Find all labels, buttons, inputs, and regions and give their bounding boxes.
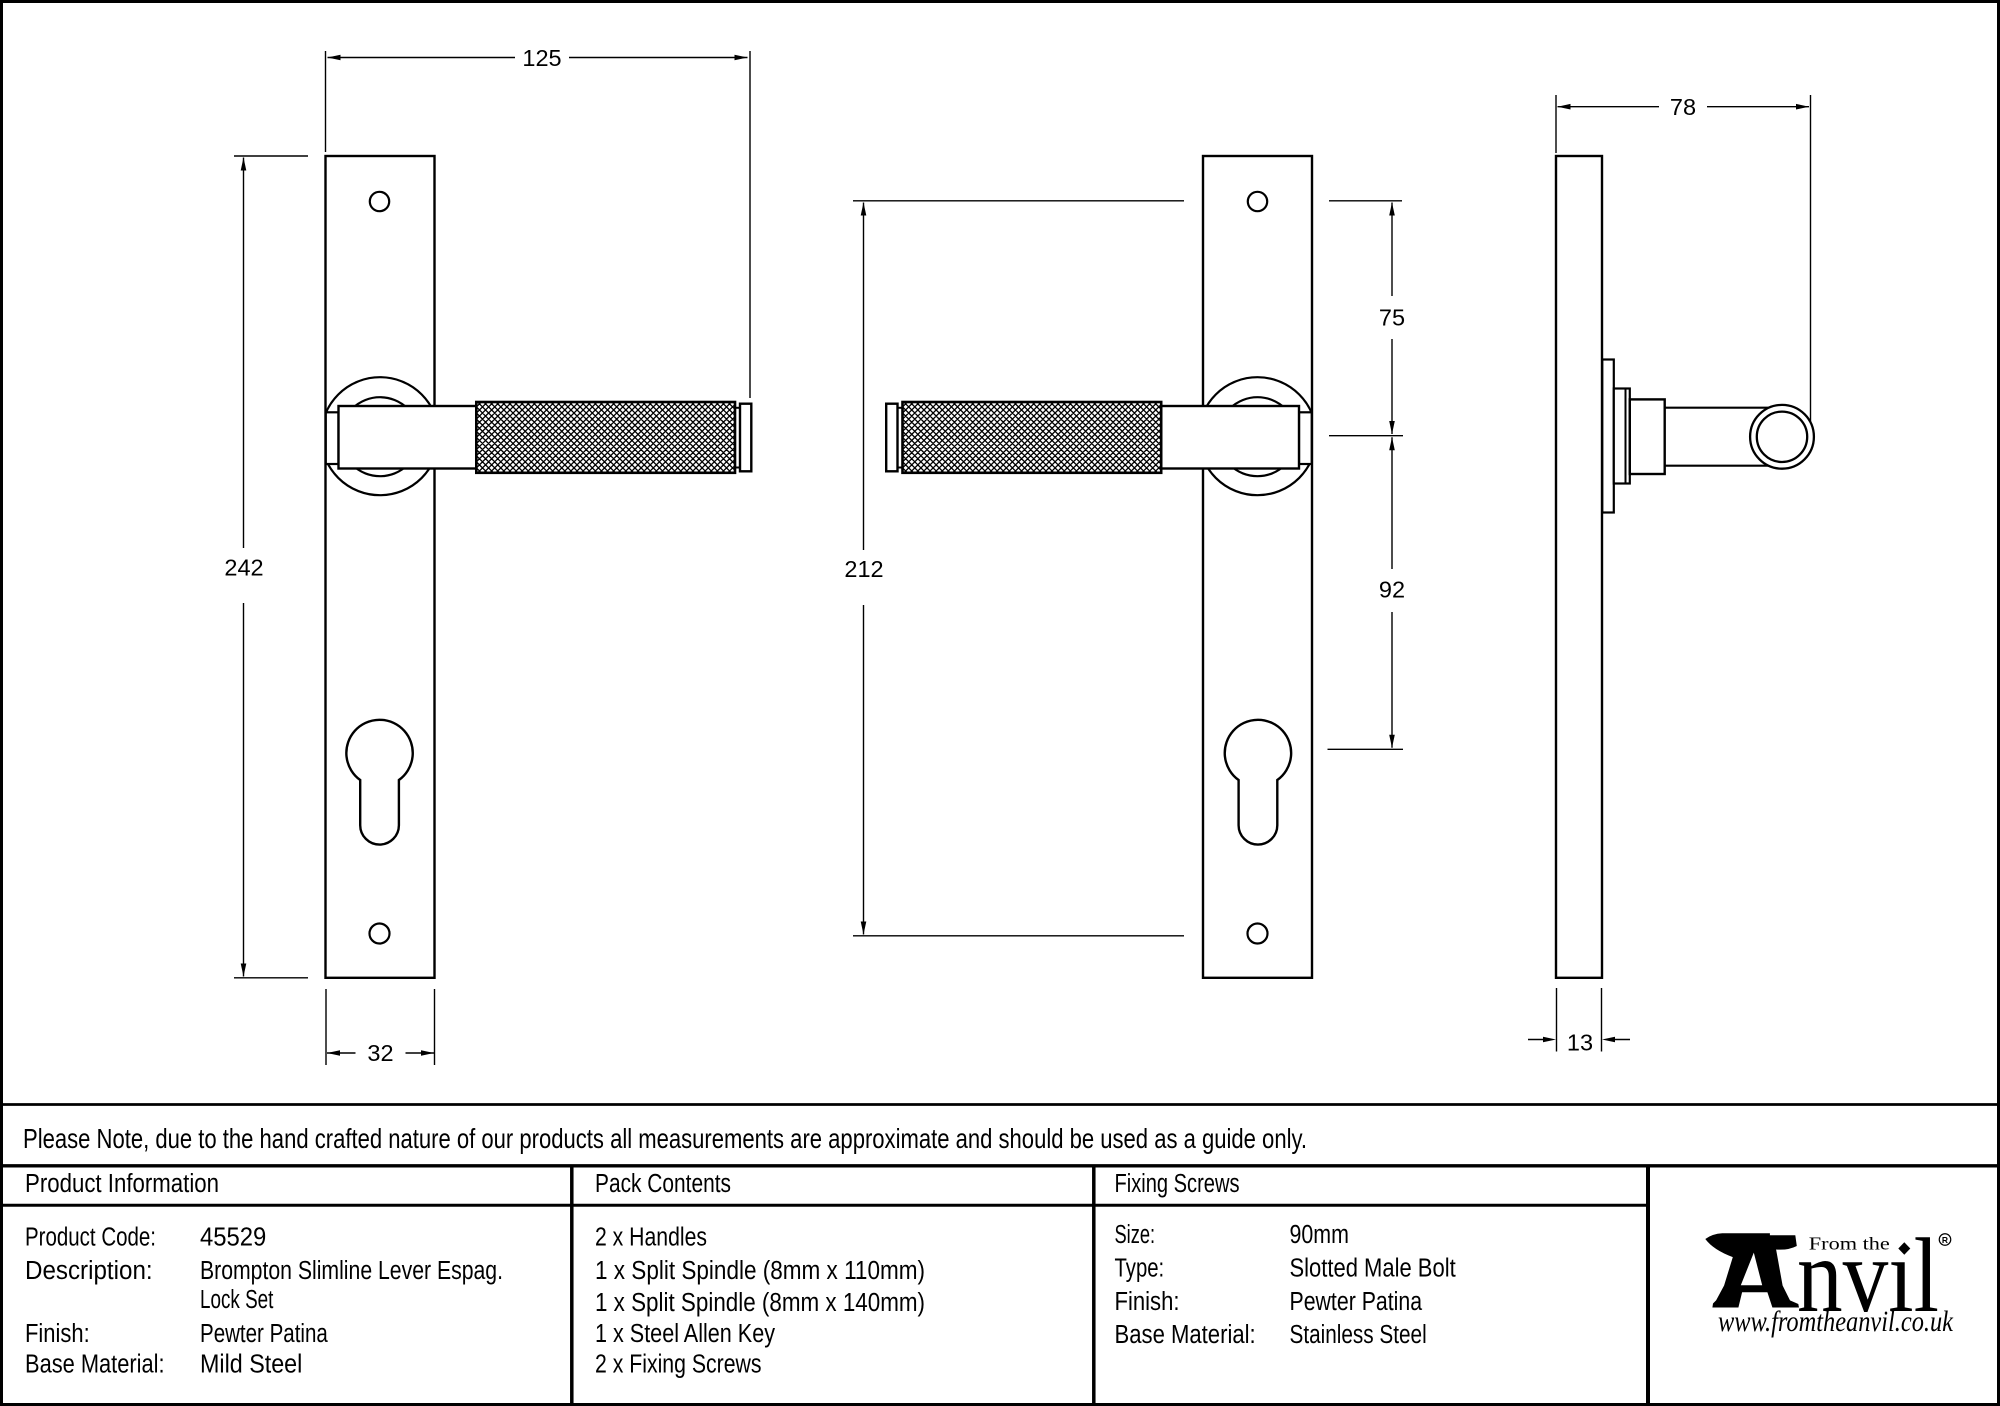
svg-text:Type:: Type: <box>1115 1255 1165 1283</box>
svg-text:Description:: Description: <box>25 1257 153 1285</box>
svg-text:Slotted Male Bolt: Slotted Male Bolt <box>1290 1255 1456 1283</box>
svg-text:Pewter Patina: Pewter Patina <box>200 1320 328 1348</box>
svg-text:Please Note, due to the hand c: Please Note, due to the hand crafted nat… <box>23 1123 1307 1154</box>
svg-text:Lock Set: Lock Set <box>200 1286 273 1314</box>
svg-text:45529: 45529 <box>200 1224 266 1252</box>
svg-text:Pewter Patina: Pewter Patina <box>1290 1288 1423 1316</box>
svg-text:242: 242 <box>224 555 263 581</box>
svg-text:Mild Steel: Mild Steel <box>200 1351 302 1379</box>
svg-text:Finish:: Finish: <box>25 1320 90 1348</box>
svg-text:Brompton Slimline Lever Espag.: Brompton Slimline Lever Espag. <box>200 1257 503 1285</box>
svg-text:125: 125 <box>522 45 561 71</box>
svg-text:1 x Steel Allen Key: 1 x Steel Allen Key <box>595 1320 775 1348</box>
svg-text:www.fromtheanvil.co.uk: www.fromtheanvil.co.uk <box>1718 1305 1954 1338</box>
svg-text:32: 32 <box>367 1040 393 1066</box>
svg-text:1 x Split Spindle (8mm x 110mm: 1 x Split Spindle (8mm x 110mm) <box>595 1257 925 1285</box>
svg-text:90mm: 90mm <box>1290 1221 1349 1249</box>
svg-text:Product Information: Product Information <box>25 1170 219 1198</box>
svg-text:Stainless Steel: Stainless Steel <box>1290 1321 1427 1349</box>
svg-text:2 x Handles: 2 x Handles <box>595 1224 707 1252</box>
svg-text:Size:: Size: <box>1115 1221 1156 1249</box>
svg-text:92: 92 <box>1379 577 1405 603</box>
svg-text:Product Code:: Product Code: <box>25 1224 156 1252</box>
svg-text:Finish:: Finish: <box>1115 1288 1180 1316</box>
svg-text:1 x Split Spindle (8mm x 140mm: 1 x Split Spindle (8mm x 140mm) <box>595 1289 925 1317</box>
svg-text:Base Material:: Base Material: <box>25 1351 165 1379</box>
svg-text:2 x Fixing Screws: 2 x Fixing Screws <box>595 1351 762 1379</box>
svg-text:78: 78 <box>1670 94 1696 120</box>
svg-text:13: 13 <box>1567 1030 1593 1056</box>
svg-text:Fixing Screws: Fixing Screws <box>1115 1170 1240 1198</box>
svg-text:Pack Contents: Pack Contents <box>595 1170 731 1198</box>
svg-text:212: 212 <box>844 556 883 582</box>
svg-text:Base Material:: Base Material: <box>1115 1321 1256 1349</box>
svg-text:75: 75 <box>1379 305 1405 331</box>
svg-text:R: R <box>1942 1235 1948 1245</box>
